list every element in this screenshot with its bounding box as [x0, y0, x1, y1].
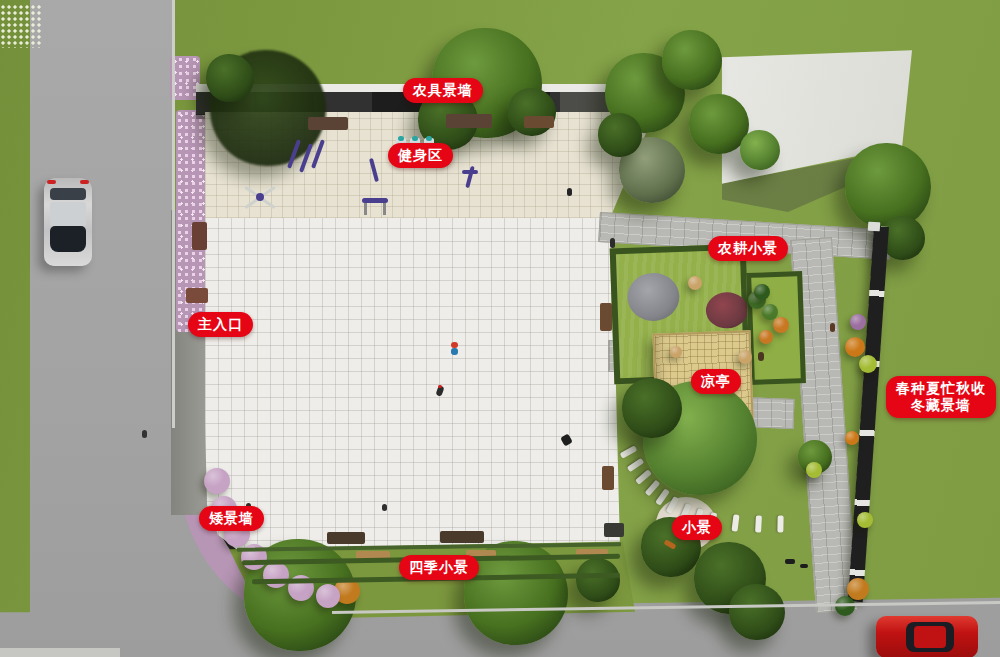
white-car	[44, 178, 92, 266]
site-object	[0, 648, 120, 657]
site-object	[664, 539, 677, 549]
label-farm-tool-wall: 农具景墙	[403, 78, 483, 103]
site-object	[308, 117, 348, 130]
car-roof	[50, 202, 86, 226]
site-object	[186, 288, 208, 303]
car-roof	[914, 626, 946, 648]
site-object	[426, 136, 432, 141]
red-car	[876, 616, 978, 657]
site-object	[311, 139, 325, 169]
site-object	[451, 348, 458, 355]
site-object	[172, 0, 175, 428]
site-object	[369, 158, 379, 182]
car-rear-window	[50, 188, 86, 200]
car-windshield	[50, 226, 86, 252]
taillight	[47, 180, 56, 184]
site-object	[462, 170, 478, 174]
site-object	[237, 542, 621, 551]
taillight	[80, 180, 89, 184]
site-object	[800, 564, 808, 568]
label-four-seasons-wall: 春种夏忙秋收 冬藏景墙	[886, 376, 996, 418]
site-object	[758, 352, 764, 361]
site-plan-rendering: 农具景墙 健身区 农耕小景 主入口 凉亭 春种夏忙秋收 冬藏景墙 矮景墙 小景 …	[0, 0, 1000, 657]
site-object	[610, 238, 615, 248]
label-small-scene: 小景	[672, 515, 722, 540]
site-object	[567, 188, 572, 196]
label-main-entrance: 主入口	[188, 312, 253, 337]
site-object	[524, 116, 554, 128]
site-object	[830, 323, 835, 332]
site-object	[192, 222, 207, 250]
site-object	[412, 136, 418, 141]
site-object	[560, 433, 573, 446]
site-object	[142, 430, 147, 438]
site-object	[382, 504, 387, 511]
site-object	[446, 114, 492, 128]
site-object	[287, 139, 301, 169]
site-object	[438, 385, 442, 388]
site-object	[602, 466, 614, 490]
site-object	[604, 523, 624, 537]
site-object	[868, 222, 881, 232]
label-fitness-area: 健身区	[388, 143, 453, 168]
site-object	[327, 532, 365, 544]
site-object	[440, 531, 484, 543]
site-object	[364, 203, 367, 215]
label-four-seasons-scene: 四季小景	[399, 555, 479, 580]
site-object	[600, 303, 612, 331]
site-object	[256, 193, 264, 201]
site-furniture-layer	[0, 0, 1000, 657]
site-object	[299, 143, 313, 173]
label-farming-scene: 农耕小景	[708, 236, 788, 261]
site-object	[332, 601, 1000, 614]
site-object	[383, 203, 386, 215]
label-pavilion: 凉亭	[691, 369, 741, 394]
label-low-wall: 矮景墙	[199, 506, 264, 531]
site-object	[785, 559, 795, 564]
site-object	[398, 136, 404, 141]
